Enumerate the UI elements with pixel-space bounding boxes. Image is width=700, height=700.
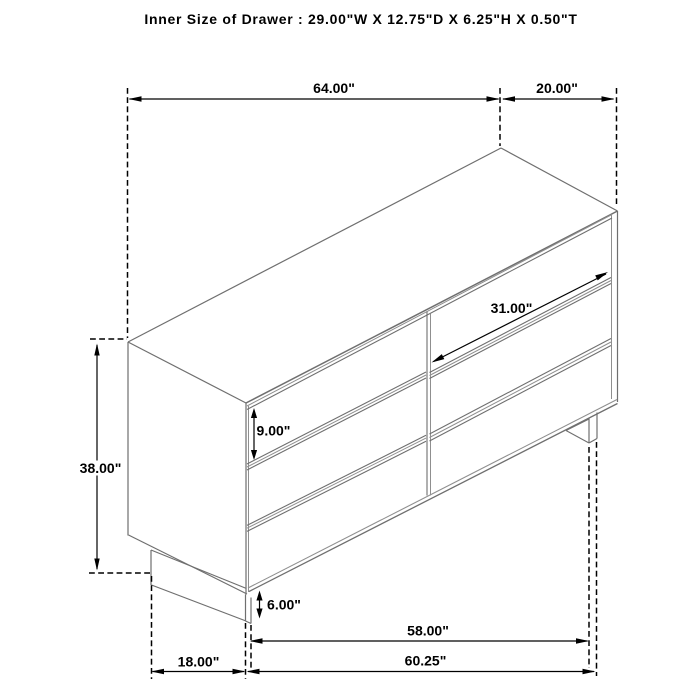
svg-text:60.25": 60.25" — [405, 653, 447, 669]
svg-text:31.00": 31.00" — [491, 300, 533, 316]
svg-text:20.00": 20.00" — [536, 80, 578, 96]
svg-text:6.00": 6.00" — [267, 597, 301, 613]
svg-text:64.00": 64.00" — [313, 80, 355, 96]
svg-text:18.00": 18.00" — [178, 654, 220, 670]
svg-text:58.00": 58.00" — [407, 623, 449, 639]
svg-text:38.00": 38.00" — [80, 460, 122, 476]
svg-text:9.00": 9.00" — [257, 423, 291, 439]
svg-text:Inner Size of Drawer : 29.00"W: Inner Size of Drawer : 29.00"W X 12.75"D… — [144, 11, 577, 27]
